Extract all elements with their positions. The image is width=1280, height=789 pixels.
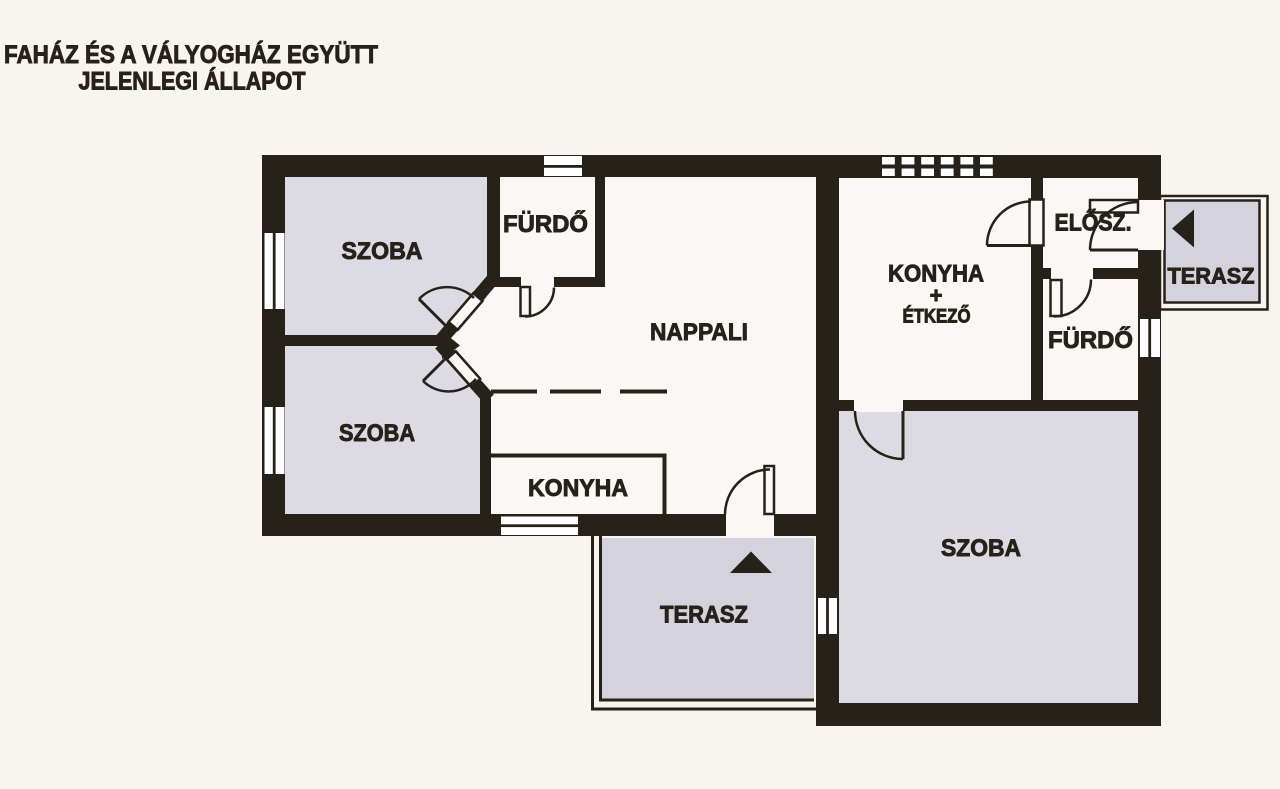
svg-text:FAHÁZ ÉS A VÁLYOGHÁZ EGYÜTT: FAHÁZ ÉS A VÁLYOGHÁZ EGYÜTT [4, 40, 378, 69]
svg-text:TERASZ: TERASZ [660, 602, 748, 629]
svg-text:FÜRDŐ: FÜRDŐ [503, 210, 588, 238]
svg-text:+: + [930, 283, 943, 308]
svg-text:SZOBA: SZOBA [941, 535, 1021, 562]
svg-text:ÉTKEZŐ: ÉTKEZŐ [903, 306, 971, 328]
svg-text:SZOBA: SZOBA [342, 238, 423, 265]
svg-text:TERASZ: TERASZ [1168, 264, 1255, 289]
svg-text:ELŐSZ.: ELŐSZ. [1055, 209, 1132, 237]
svg-text:FÜRDŐ: FÜRDŐ [1048, 326, 1133, 354]
svg-text:KONYHA: KONYHA [528, 475, 628, 502]
svg-text:SZOBA: SZOBA [339, 420, 415, 447]
svg-text:JELENLEGI ÁLLAPOT: JELENLEGI ÁLLAPOT [79, 67, 306, 96]
svg-text:NAPPALI: NAPPALI [650, 319, 748, 346]
